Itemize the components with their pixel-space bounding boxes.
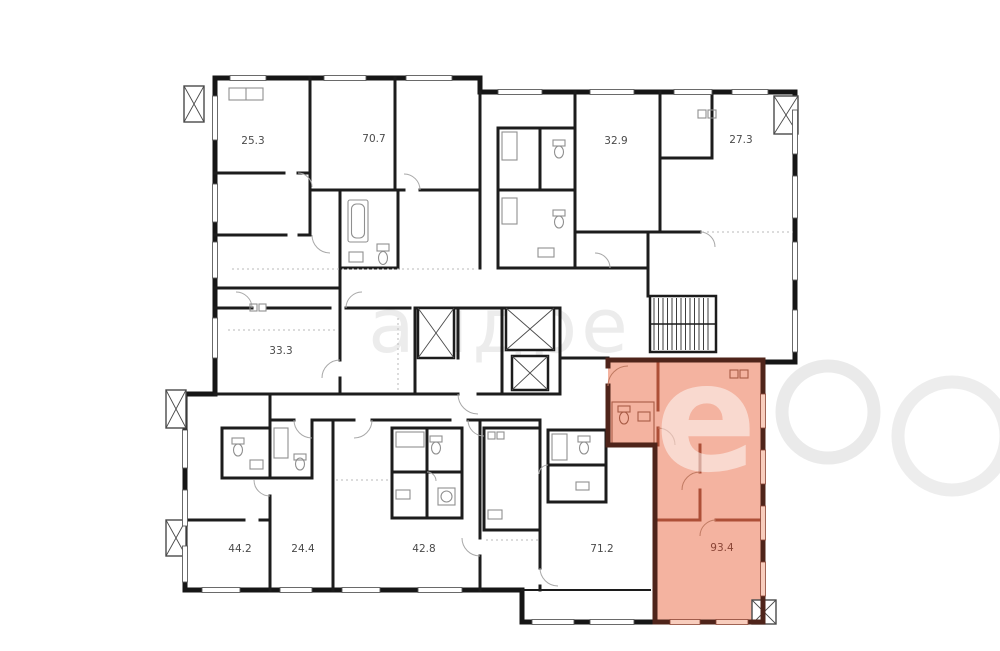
area-label-44-2: 44.2	[228, 543, 251, 555]
area-label-42-8: 42.8	[412, 543, 435, 555]
watermark-ring-icon	[898, 382, 1000, 490]
elevator-icon	[506, 308, 554, 350]
area-label-24-4: 24.4	[291, 543, 315, 555]
area-label-71-2: 71.2	[590, 543, 613, 555]
watermark-letter: е	[655, 332, 757, 506]
area-label-70-7: 70.7	[362, 133, 385, 145]
area-label-32-9: 32.9	[604, 135, 627, 147]
watermark-ring-icon	[782, 366, 874, 458]
area-label-33-3: 33.3	[269, 345, 292, 357]
elevator-icon	[418, 308, 454, 358]
area-label-93-4-highlighted: 93.4	[710, 542, 734, 554]
elevator-icon	[512, 356, 548, 390]
area-label-25-3: 25.3	[241, 135, 264, 147]
floor-plan-image[interactable]: андре	[0, 0, 1000, 651]
area-label-27-3: 27.3	[729, 134, 752, 146]
